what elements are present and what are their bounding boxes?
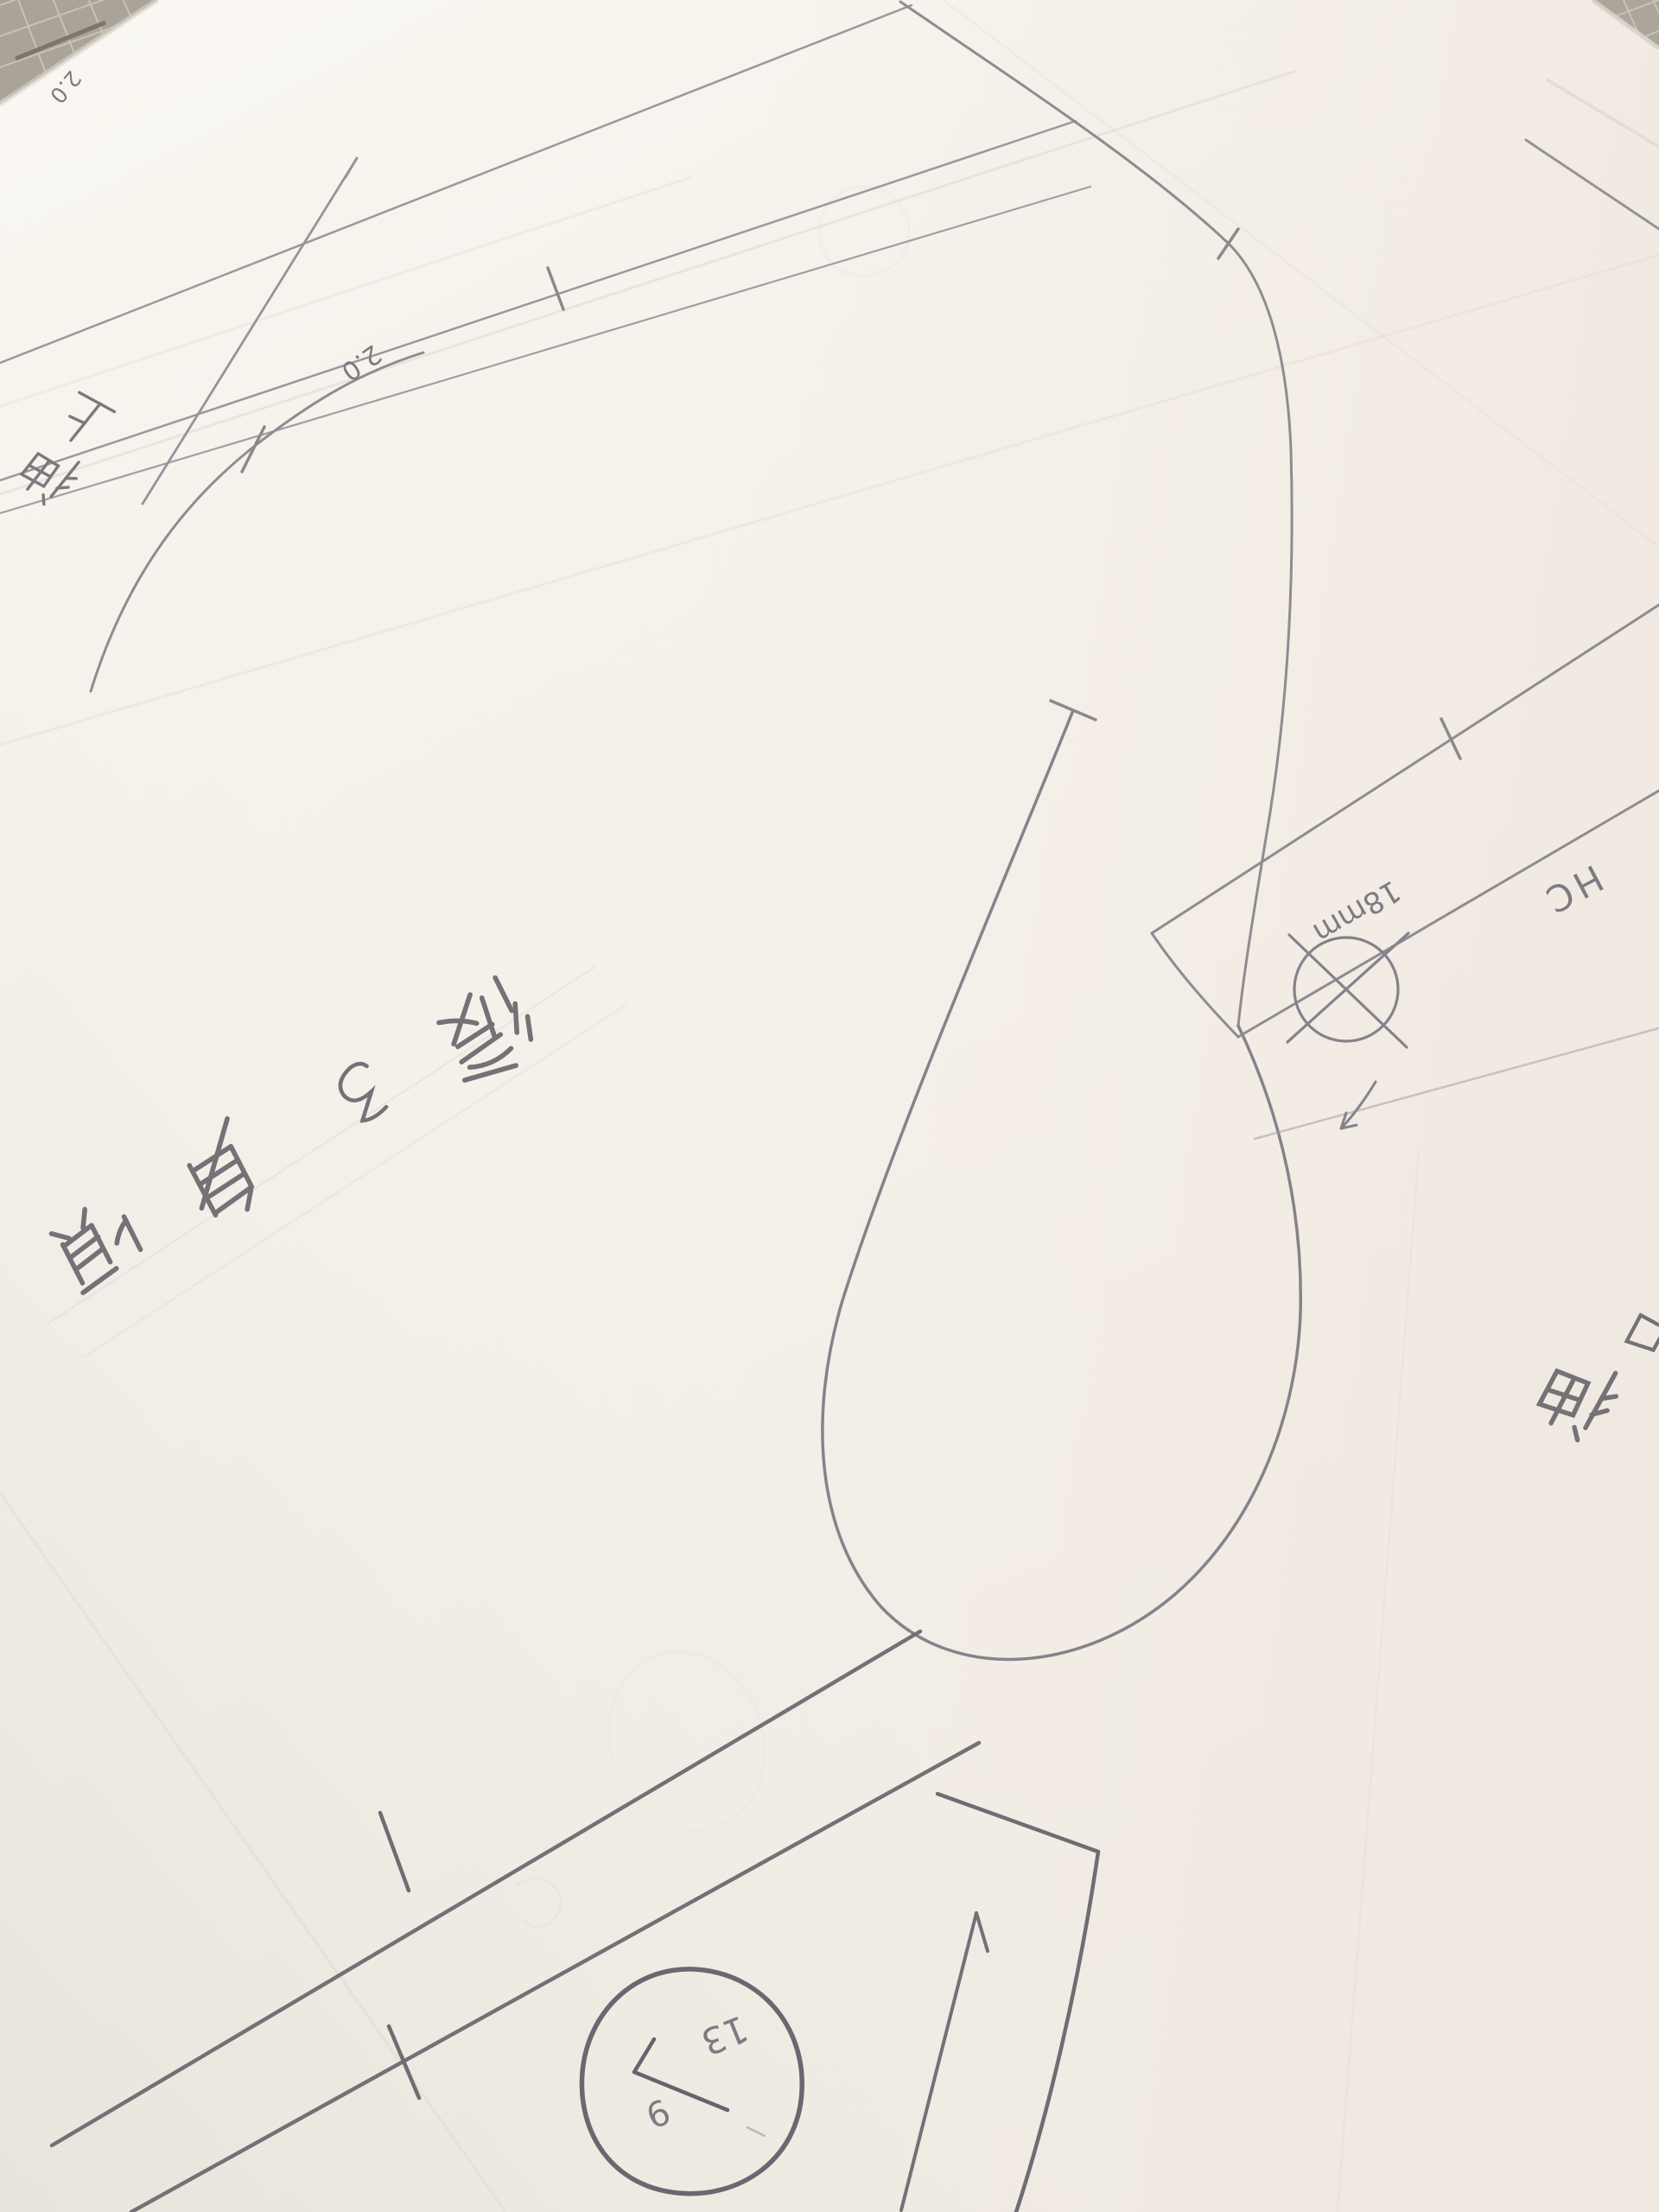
photo-of-pattern-papers: 2.0 2.0 <box>0 0 1659 2212</box>
pattern-drawing-canvas: 2.0 2.0 <box>0 0 1659 2212</box>
